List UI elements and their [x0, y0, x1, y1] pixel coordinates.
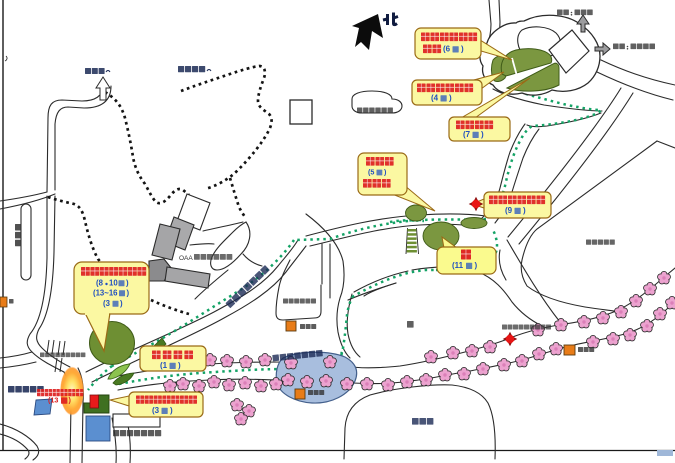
svg-text:10: 10 — [109, 278, 118, 287]
svg-text:(13: (13 — [48, 396, 58, 405]
svg-text:): ) — [126, 278, 129, 287]
svg-text:(3: (3 — [103, 299, 111, 308]
svg-text:): ) — [120, 299, 123, 308]
svg-text:): ) — [178, 361, 181, 370]
svg-text:): ) — [481, 130, 484, 139]
svg-text:(4: (4 — [431, 94, 439, 103]
svg-text:OAA: OAA — [179, 255, 193, 262]
svg-text:): ) — [523, 206, 526, 215]
svg-text:(13~16: (13~16 — [93, 288, 118, 297]
svg-text:): ) — [461, 45, 464, 54]
svg-text:(3: (3 — [152, 406, 160, 415]
svg-text:): ) — [475, 261, 478, 270]
svg-text:(6: (6 — [443, 45, 451, 54]
svg-text:): ) — [449, 94, 452, 103]
svg-text:(5: (5 — [368, 167, 374, 176]
svg-text:(7: (7 — [463, 130, 471, 139]
svg-text:(1: (1 — [160, 361, 168, 370]
svg-text:): ) — [127, 288, 130, 297]
svg-text:(11: (11 — [452, 261, 464, 270]
svg-text:): ) — [170, 406, 173, 415]
svg-text:(9: (9 — [505, 206, 513, 215]
svg-text:(8: (8 — [96, 278, 104, 287]
